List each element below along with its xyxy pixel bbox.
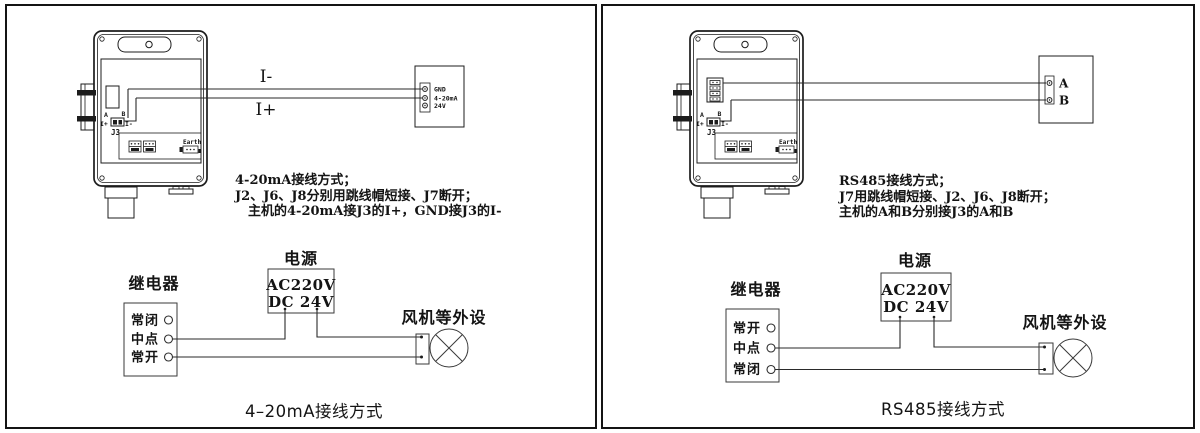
power-line2: DC 24V — [883, 298, 949, 316]
power-line1: AC220V — [265, 276, 336, 294]
corner-screw-icon — [100, 37, 104, 41]
terminal-label-24v: 24V — [434, 102, 446, 110]
relay-terminal-com: 中点 — [733, 341, 761, 357]
power-line2: DC 24V — [268, 293, 334, 311]
note-line-2: J2、J6、J8分别用跳线帽短接、J7断开； — [234, 188, 478, 204]
transmitter-device: A B I+ I- J3 Earth — [77, 31, 207, 218]
relay-title: 继电器 — [730, 280, 781, 299]
earth-label: Earth — [183, 139, 201, 146]
diagram-rs485: A B I+ I- J3 Earth — [603, 6, 1193, 427]
panel-rs485: A B I+ I- J3 Earth — [601, 4, 1195, 429]
relay-terminal-nc: 常闭 — [131, 313, 159, 329]
earth-label: Earth — [779, 139, 797, 146]
host-terminal-block: GND 4-20mA 24V — [415, 66, 464, 127]
relay: 继电器 常开 中点 常闭 — [726, 280, 782, 382]
power-line1: AC220V — [880, 281, 951, 299]
probe-gland — [105, 187, 137, 218]
inner-panel — [697, 59, 797, 163]
mount-foot — [169, 187, 193, 195]
wiring-note: 4-20mA接线方式； J2、J6、J8分别用跳线帽短接、J7断开； 主机的4-… — [234, 172, 501, 219]
relay: 继电器 常闭 中点 常开 — [124, 274, 180, 376]
circuit-wires — [173, 313, 422, 357]
corner-screw-icon — [696, 37, 700, 41]
j3-pin-b-label: B — [122, 110, 126, 118]
slot-screw-icon — [742, 41, 748, 47]
terminal-label-gnd: GND — [434, 86, 446, 94]
wire-label-i-minus: I- — [260, 67, 272, 87]
slot-screw-icon — [146, 41, 152, 47]
relay-terminal-no: 常开 — [733, 321, 761, 337]
relay-terminal-com: 中点 — [131, 332, 159, 348]
relay-title: 继电器 — [128, 274, 179, 293]
j3-pin-iplus-label: I+ — [100, 120, 108, 128]
rs485-header — [707, 78, 723, 102]
internal-module — [106, 86, 119, 108]
page: { "colors": { "line": "#1c1c1c", "backgr… — [0, 0, 1200, 433]
relay-terminal-nc: 常闭 — [733, 362, 761, 378]
relay-terminal-no: 常开 — [131, 350, 159, 366]
power-title: 电源 — [284, 249, 318, 268]
earth-terminal: Earth — [776, 139, 798, 153]
terminal-label-a: A — [1058, 77, 1069, 91]
note-line-3: 主机的4-20mA接J3的I+，GND接J3的I- — [248, 203, 501, 219]
diagram-4-20ma: A B I+ I- J3 Earth — [7, 6, 595, 427]
corner-screw-icon — [793, 37, 797, 41]
inner-panel — [101, 59, 201, 163]
jumper-subpanel: Earth — [715, 133, 797, 159]
panel-caption: 4–20mA接线方式 — [245, 402, 383, 421]
j3-pin-a-label: A — [700, 111, 704, 119]
earth-terminal: Earth — [180, 139, 202, 153]
corner-screw-icon — [696, 176, 700, 180]
corner-screw-icon — [197, 37, 201, 41]
peripheral-title: 风机等外设 — [401, 308, 486, 327]
jumper-subpanel: Earth — [119, 133, 201, 159]
transmitter-device: A B I+ I- J3 Earth — [673, 31, 803, 218]
power-supply: 电源 AC220V DC 24V — [265, 249, 336, 313]
jumper-block-icon — [740, 141, 752, 152]
panel-4-20ma: A B I+ I- J3 Earth — [5, 4, 597, 429]
corner-screw-icon — [197, 176, 201, 180]
j3-pin-a-label: A — [104, 111, 108, 119]
wiring-note: RS485接线方式； J7用跳线帽短接、J2、J6、J8断开； 主机的A和B分别… — [838, 173, 1056, 220]
jumper-block-icon — [144, 141, 156, 152]
signal-wires — [720, 83, 1046, 121]
wire-label-i-plus: I+ — [256, 100, 277, 120]
mount-foot — [765, 187, 789, 195]
note-line-1: 4-20mA接线方式； — [235, 172, 356, 188]
peripheral-title: 风机等外设 — [1022, 313, 1107, 332]
corner-screw-icon — [793, 176, 797, 180]
note-line-2: J7用跳线帽短接、J2、J6、J8断开； — [838, 189, 1056, 205]
top-slot — [714, 37, 767, 52]
power-title: 电源 — [898, 251, 932, 270]
circuit-wires — [775, 321, 1044, 370]
top-slot — [118, 37, 171, 52]
note-line-3: 主机的A和B分别接J3的A和B — [839, 204, 1013, 220]
terminal-label-b: B — [1059, 94, 1069, 108]
j3-pin-iplus-label: I+ — [696, 120, 704, 128]
power-supply: 电源 AC220V DC 24V — [880, 251, 951, 321]
fan-symbol: 风机等外设 — [1022, 313, 1107, 377]
j3-pin-b-label: B — [718, 110, 722, 118]
jumper-block-icon — [129, 141, 141, 152]
corner-screw-icon — [100, 176, 104, 180]
jumper-block-icon — [725, 141, 737, 152]
note-line-1: RS485接线方式； — [839, 173, 951, 189]
panel-caption: RS485接线方式 — [881, 400, 1005, 419]
probe-gland — [701, 187, 733, 218]
host-terminal-block: A B — [1039, 56, 1093, 123]
